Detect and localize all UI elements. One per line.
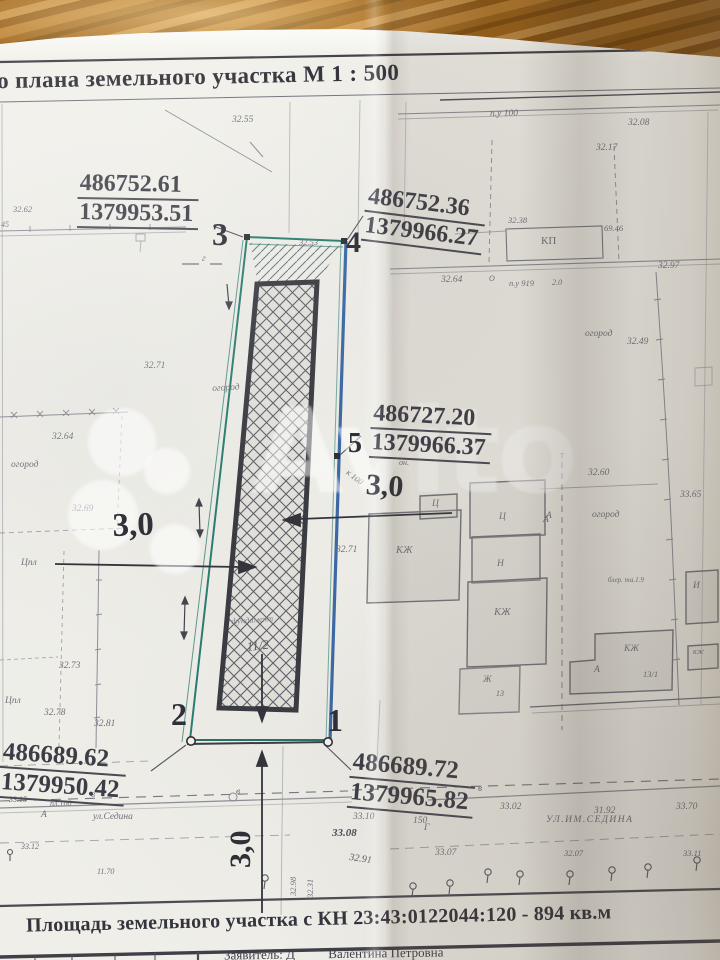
coordinate-callout-point2: 486689.62 1379950.42 [0, 738, 127, 807]
photo-of-land-plan: о плана земельного участка М 1 : 500 [0, 0, 720, 960]
dimension-right: 3,0 [365, 470, 405, 503]
dimension-bottom: 3,0 [226, 831, 256, 869]
applicant-name: Валентина Петровна [328, 944, 443, 960]
point-number-2: 2 [171, 698, 187, 730]
coordinate-callout-point1: 486689.72 1379965.82 [347, 748, 478, 819]
street-pole-symbols [8, 850, 701, 898]
point-number-4: 4 [346, 228, 361, 258]
point-number-5: 5 [348, 430, 362, 458]
coordinate-y-value: 1379953.51 [77, 199, 198, 230]
parcel-blue-edge [330, 241, 346, 741]
applicant-row: Заявитель: Д Валентина Петровна [224, 944, 444, 960]
parcel-boundary [182, 237, 346, 744]
parcel-top-hatch [250, 243, 342, 284]
coordinate-callout-point5: 486727.20 1379966.37 [369, 400, 493, 464]
survey-plan-sheet: о плана земельного участка М 1 : 500 [0, 0, 720, 960]
applicant-prefix: Заявитель: Д [224, 947, 295, 960]
point-number-1: 1 [327, 704, 343, 736]
point-number-3: 3 [212, 218, 228, 250]
coordinate-callout-point3: 486752.61 1379953.51 [77, 170, 199, 230]
dimension-left: 3,0 [112, 509, 154, 543]
coordinate-x-value: 486752.61 [77, 170, 198, 201]
plan-drawing [0, 0, 720, 960]
